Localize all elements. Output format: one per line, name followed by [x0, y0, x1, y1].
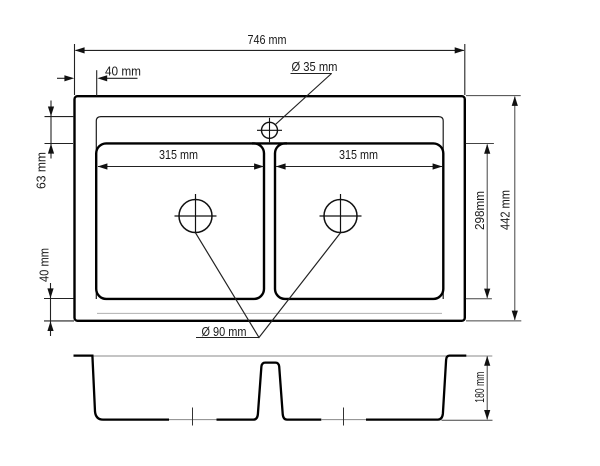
svg-text:315 mm: 315 mm [339, 148, 378, 162]
svg-text:40 mm: 40 mm [105, 64, 141, 78]
svg-text:442 mm: 442 mm [499, 190, 513, 230]
svg-text:63 mm: 63 mm [35, 152, 49, 189]
svg-text:40 mm: 40 mm [38, 248, 52, 282]
svg-text:746 mm: 746 mm [248, 33, 287, 47]
svg-text:Ø 90 mm: Ø 90 mm [202, 325, 247, 339]
svg-text:180 mm: 180 mm [473, 372, 487, 403]
svg-text:315 mm: 315 mm [159, 148, 198, 162]
svg-text:Ø 35 mm: Ø 35 mm [292, 60, 338, 74]
svg-text:298mm: 298mm [473, 191, 487, 230]
